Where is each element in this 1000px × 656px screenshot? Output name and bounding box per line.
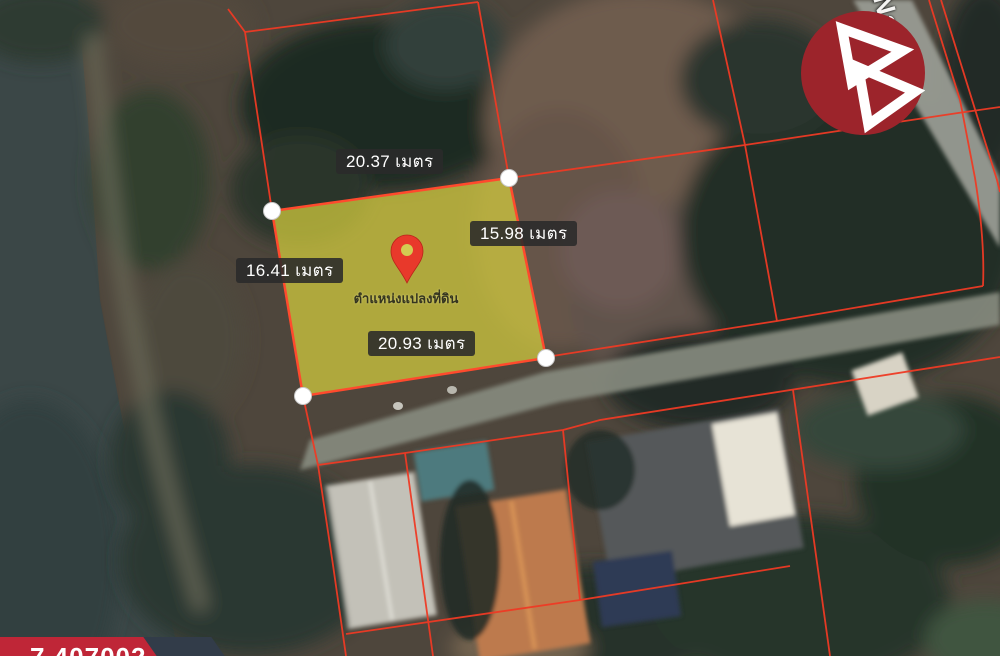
dimension-label-left: 16.41 เมตร	[236, 258, 343, 283]
brand-logo	[801, 11, 925, 135]
dimension-label-top: 20.37 เมตร	[336, 149, 443, 174]
corner-marker	[501, 170, 518, 187]
corner-marker	[295, 388, 312, 405]
satellite-map: 20.37 เมตร 15.98 เมตร 16.41 เมตร 20.93 เ…	[0, 0, 1000, 656]
banner-code: 7 407002	[30, 642, 146, 656]
pin-caption: ตำแหน่งแปลงที่ดิน	[354, 288, 459, 309]
dimension-label-right: 15.98 เมตร	[470, 221, 577, 246]
highlighted-land-plot	[272, 178, 546, 396]
dimension-label-bottom: 20.93 เมตร	[368, 331, 475, 356]
corner-marker	[264, 203, 281, 220]
corner-marker	[538, 350, 555, 367]
logo-icon	[801, 11, 925, 135]
building-blue-roof	[593, 551, 681, 627]
listing-banner: 7 407002	[0, 637, 230, 656]
